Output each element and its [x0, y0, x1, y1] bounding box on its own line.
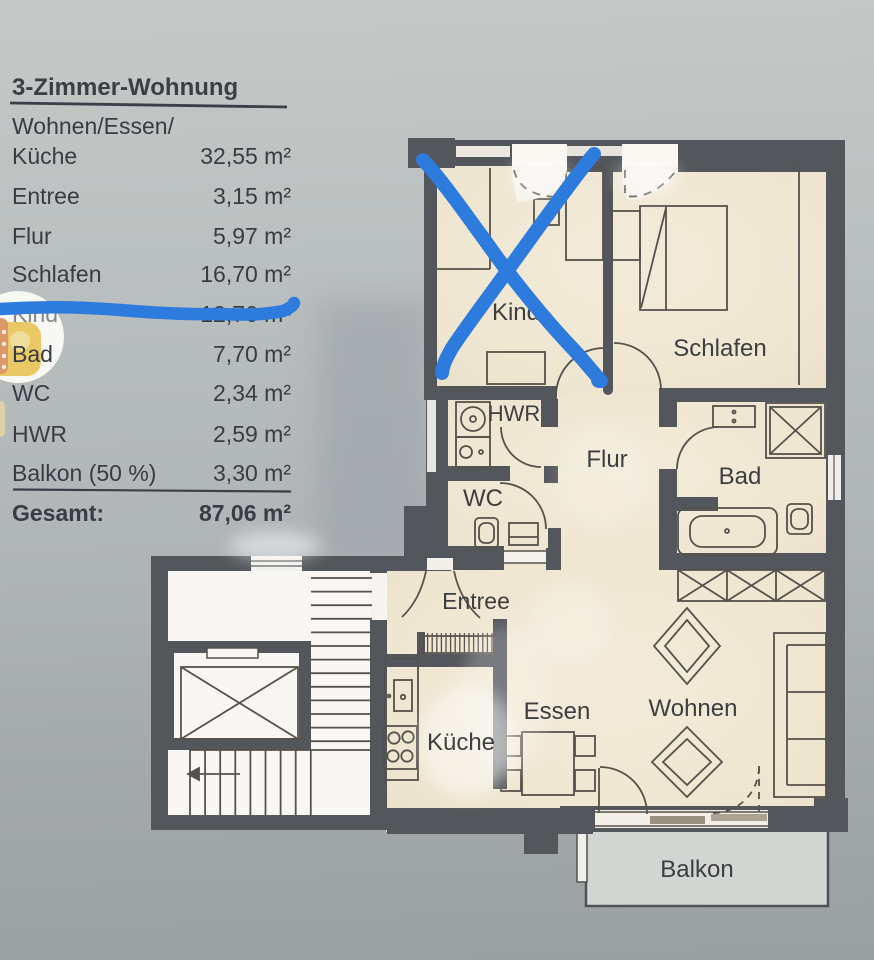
svg-text:Balkon (50 %): Balkon (50 %) [12, 460, 156, 486]
svg-text:Küche: Küche [12, 143, 77, 169]
svg-text:2,59 m²: 2,59 m² [213, 421, 291, 447]
svg-text:3,15 m²: 3,15 m² [213, 183, 291, 209]
svg-text:32,55 m²: 32,55 m² [200, 143, 291, 169]
svg-text:HWR: HWR [12, 421, 67, 447]
svg-text:5,97 m²: 5,97 m² [213, 223, 291, 249]
svg-text:3-Zimmer-Wohnung: 3-Zimmer-Wohnung [12, 74, 238, 101]
svg-text:Flur: Flur [586, 446, 627, 473]
svg-text:Entree: Entree [442, 588, 510, 614]
svg-text:7,70 m²: 7,70 m² [213, 341, 291, 367]
svg-text:87,06 m²: 87,06 m² [199, 500, 291, 526]
svg-text:Schlafen: Schlafen [12, 261, 102, 287]
svg-text:Gesamt:: Gesamt: [12, 500, 104, 526]
svg-text:Küche: Küche [427, 729, 495, 756]
svg-text:16,70 m²: 16,70 m² [200, 261, 291, 287]
svg-text:HWR: HWR [488, 401, 541, 426]
svg-text:Bad: Bad [719, 463, 762, 490]
svg-text:Essen: Essen [524, 698, 591, 725]
svg-text:Bad: Bad [12, 341, 53, 367]
svg-text:WC: WC [12, 380, 50, 406]
svg-text:Wohnen: Wohnen [649, 695, 738, 722]
svg-text:3,30 m²: 3,30 m² [213, 460, 291, 486]
svg-text:Flur: Flur [12, 223, 52, 249]
svg-text:Entree: Entree [12, 183, 80, 209]
svg-text:Schlafen: Schlafen [673, 335, 766, 362]
svg-text:2,34 m²: 2,34 m² [213, 380, 291, 406]
svg-text:WC: WC [463, 485, 503, 512]
svg-text:Balkon: Balkon [660, 856, 733, 883]
svg-text:Wohnen/Essen/: Wohnen/Essen/ [12, 113, 175, 139]
